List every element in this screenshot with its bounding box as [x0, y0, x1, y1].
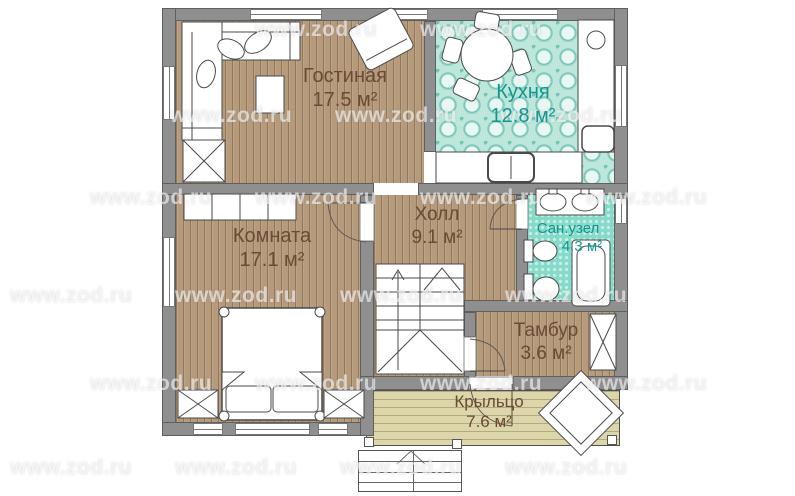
- porch-post: [607, 435, 617, 445]
- window: [250, 9, 322, 20]
- room-label-porch: Крыльцо 7.6 м²: [454, 392, 523, 433]
- wall-bath-left-stub: [516, 195, 528, 199]
- window: [235, 423, 310, 435]
- watermark: www.zod.ru: [505, 456, 627, 480]
- room-area: 12.8 м²: [491, 104, 556, 128]
- room-name: Гостиная: [303, 64, 387, 88]
- window: [318, 423, 348, 435]
- window: [615, 65, 627, 127]
- room-area: 3.6 м²: [514, 343, 579, 366]
- room-area: 4.3 м²: [562, 238, 602, 256]
- window: [163, 66, 175, 120]
- room-area: 17.1 м²: [233, 248, 311, 272]
- room-name: Кухня: [491, 80, 556, 104]
- entrance-steps: [358, 450, 462, 492]
- room-label-bathroom: Сан.узел 4.3 м²: [534, 220, 602, 256]
- window: [388, 9, 428, 20]
- watermark: www.zod.ru: [10, 456, 132, 480]
- room-name: Сан.узел: [534, 220, 602, 238]
- wall-bottom-a: [368, 376, 469, 390]
- room-label-hall: Холл 9.1 м²: [411, 204, 462, 250]
- room-area: 7.6 м²: [454, 412, 523, 432]
- porch-post: [364, 437, 374, 447]
- watermark: www.zod.ru: [175, 456, 297, 480]
- room-area: 17.5 м²: [303, 88, 387, 112]
- window: [482, 9, 558, 20]
- window: [193, 423, 223, 435]
- room-name: Холл: [411, 204, 462, 227]
- watermark: www.zod.ru: [10, 284, 132, 308]
- room-name: Тамбур: [514, 320, 579, 343]
- room-label-bedroom: Комната 17.1 м²: [233, 224, 311, 272]
- wall-tambur-left-a: [464, 312, 476, 337]
- room-label-kitchen: Кухня 12.8 м²: [491, 80, 556, 128]
- window: [615, 198, 627, 224]
- porch-post: [452, 439, 462, 449]
- room-area: 9.1 м²: [411, 227, 462, 250]
- wall-tambur-top: [464, 300, 628, 312]
- room-name: Комната: [233, 224, 311, 248]
- wall-living-bottom: [162, 183, 374, 195]
- floor-plan: www.zod.ru www.zod.ru www.zod.ru www.zod…: [0, 0, 795, 496]
- room-label-living: Гостиная 17.5 м²: [303, 64, 387, 112]
- wall-living-kitchen: [424, 21, 436, 152]
- wall-bedroom-right-stub: [360, 195, 374, 203]
- room-label-tambur: Тамбур 3.6 м²: [514, 320, 579, 366]
- wall-bedroom-porch: [360, 376, 374, 436]
- window: [163, 237, 175, 307]
- wall-kitchen-bottom: [418, 183, 628, 195]
- room-name: Крыльцо: [454, 392, 523, 412]
- wall-bottom-b: [513, 376, 628, 390]
